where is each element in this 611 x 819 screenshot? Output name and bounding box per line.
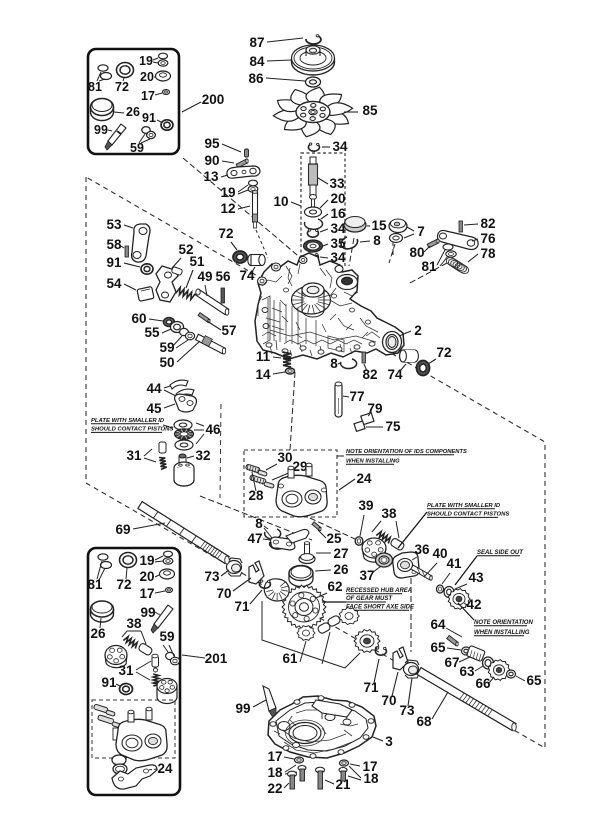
svg-text:78: 78	[480, 246, 496, 261]
svg-text:81: 81	[87, 577, 103, 592]
svg-text:82: 82	[362, 367, 377, 382]
svg-text:50: 50	[159, 355, 174, 370]
svg-text:3: 3	[385, 734, 393, 749]
svg-text:64: 64	[430, 617, 446, 632]
svg-text:NOTE ORIENTATION: NOTE ORIENTATION	[474, 620, 533, 626]
svg-text:65: 65	[526, 673, 542, 688]
svg-text:99: 99	[235, 701, 250, 716]
svg-text:17: 17	[267, 749, 282, 764]
svg-text:91: 91	[101, 675, 117, 690]
svg-text:SEAL SIDE OUT: SEAL SIDE OUT	[477, 550, 524, 556]
svg-text:RECESSED HUB AREA: RECESSED HUB AREA	[346, 588, 412, 594]
svg-text:43: 43	[468, 570, 484, 585]
svg-text:39: 39	[358, 498, 373, 513]
svg-text:36: 36	[414, 542, 430, 557]
svg-text:91: 91	[142, 111, 156, 125]
svg-text:54: 54	[106, 276, 122, 291]
svg-text:8: 8	[373, 233, 381, 248]
svg-text:NOTE ORIENTATION OF IDS COMPON: NOTE ORIENTATION OF IDS COMPONENTS	[346, 449, 467, 455]
svg-text:24: 24	[356, 471, 372, 486]
svg-text:81: 81	[421, 259, 437, 274]
svg-text:31: 31	[126, 448, 142, 463]
svg-text:76: 76	[480, 231, 496, 246]
svg-text:55: 55	[144, 325, 160, 340]
svg-text:90: 90	[204, 153, 219, 168]
svg-text:OF GEAR MUST: OF GEAR MUST	[346, 596, 393, 602]
svg-text:70: 70	[216, 586, 231, 601]
svg-text:7: 7	[417, 224, 425, 239]
svg-text:19: 19	[139, 54, 153, 68]
svg-text:62: 62	[327, 579, 342, 594]
svg-text:38: 38	[126, 616, 142, 631]
svg-text:30: 30	[277, 450, 292, 465]
svg-text:26: 26	[90, 626, 106, 641]
svg-text:19: 19	[139, 553, 154, 568]
svg-text:95: 95	[204, 136, 220, 151]
svg-text:46: 46	[205, 422, 221, 437]
svg-text:73: 73	[204, 569, 220, 584]
svg-text:81: 81	[88, 80, 102, 94]
svg-text:PLATE WITH SMALLER ID: PLATE WITH SMALLER ID	[427, 503, 501, 509]
svg-text:86: 86	[248, 71, 264, 86]
svg-text:WHEN INSTALLING: WHEN INSTALLING	[346, 459, 400, 465]
svg-text:22: 22	[267, 781, 282, 796]
svg-text:58: 58	[106, 237, 122, 252]
svg-text:71: 71	[363, 680, 379, 695]
svg-text:17: 17	[139, 586, 154, 601]
svg-text:73: 73	[399, 703, 415, 718]
svg-text:85: 85	[362, 103, 378, 118]
svg-text:32: 32	[195, 448, 210, 463]
svg-text:19: 19	[220, 185, 235, 200]
svg-text:16: 16	[330, 206, 346, 221]
svg-text:59: 59	[159, 340, 174, 355]
svg-text:51: 51	[189, 254, 205, 269]
svg-text:20: 20	[140, 70, 154, 84]
svg-text:56: 56	[215, 269, 231, 284]
svg-text:2: 2	[414, 323, 422, 338]
svg-text:47: 47	[247, 531, 262, 546]
svg-text:14: 14	[255, 367, 271, 382]
svg-text:25: 25	[326, 531, 342, 546]
svg-text:FACE SHORT AXE SIDE: FACE SHORT AXE SIDE	[346, 604, 415, 610]
svg-text:33: 33	[329, 176, 345, 191]
svg-text:17: 17	[141, 89, 155, 103]
svg-text:18: 18	[267, 765, 283, 780]
svg-text:68: 68	[416, 714, 432, 729]
svg-text:65: 65	[430, 640, 446, 655]
svg-text:26: 26	[333, 562, 349, 577]
svg-text:44: 44	[146, 381, 162, 396]
svg-text:57: 57	[221, 323, 236, 338]
svg-text:77: 77	[349, 389, 364, 404]
svg-text:8: 8	[255, 516, 263, 531]
svg-text:45: 45	[146, 401, 162, 416]
svg-text:34: 34	[332, 139, 348, 154]
svg-text:15: 15	[371, 218, 387, 233]
svg-text:20: 20	[139, 569, 154, 584]
svg-text:60: 60	[131, 311, 146, 326]
svg-text:18: 18	[363, 771, 379, 786]
svg-text:41: 41	[446, 556, 462, 571]
svg-text:13: 13	[203, 169, 219, 184]
svg-text:84: 84	[249, 54, 265, 69]
svg-text:10: 10	[273, 194, 288, 209]
svg-text:WHEN INSTALLING: WHEN INSTALLING	[474, 630, 530, 636]
svg-text:40: 40	[432, 546, 447, 561]
svg-text:8: 8	[330, 356, 338, 371]
svg-text:99: 99	[140, 605, 155, 620]
svg-text:70: 70	[381, 693, 396, 708]
svg-text:91: 91	[106, 255, 122, 270]
svg-text:37: 37	[359, 568, 374, 583]
svg-text:80: 80	[409, 245, 424, 260]
svg-text:63: 63	[459, 664, 475, 679]
svg-text:72: 72	[436, 345, 451, 360]
svg-text:66: 66	[475, 676, 491, 691]
svg-text:201: 201	[205, 651, 228, 666]
svg-text:SHOULD CONTACT PISTONS: SHOULD CONTACT PISTONS	[91, 427, 173, 433]
svg-text:49: 49	[197, 269, 212, 284]
svg-text:11: 11	[256, 349, 271, 364]
svg-text:72: 72	[115, 80, 129, 94]
svg-text:38: 38	[381, 506, 397, 521]
svg-text:75: 75	[385, 419, 401, 434]
svg-text:24: 24	[157, 761, 173, 776]
svg-text:200: 200	[202, 92, 225, 107]
svg-text:72: 72	[218, 226, 233, 241]
svg-text:61: 61	[282, 651, 298, 666]
svg-text:69: 69	[115, 522, 130, 537]
svg-text:SHOULD CONTACT PISTONS: SHOULD CONTACT PISTONS	[427, 512, 509, 518]
svg-text:82: 82	[480, 216, 495, 231]
svg-text:71: 71	[234, 599, 250, 614]
svg-text:74: 74	[387, 367, 403, 382]
svg-text:27: 27	[333, 546, 348, 561]
svg-text:12: 12	[220, 201, 235, 216]
svg-text:42: 42	[466, 597, 481, 612]
svg-text:29: 29	[292, 459, 307, 474]
svg-text:53: 53	[106, 217, 122, 232]
svg-text:99: 99	[94, 123, 108, 137]
svg-text:67: 67	[444, 655, 459, 670]
svg-text:20: 20	[330, 191, 345, 206]
svg-text:72: 72	[116, 577, 131, 592]
svg-text:87: 87	[249, 35, 264, 50]
svg-text:31: 31	[118, 663, 134, 678]
svg-text:26: 26	[126, 105, 140, 119]
svg-text:59: 59	[159, 629, 174, 644]
svg-text:PLATE WITH SMALLER ID: PLATE WITH SMALLER ID	[91, 418, 165, 424]
